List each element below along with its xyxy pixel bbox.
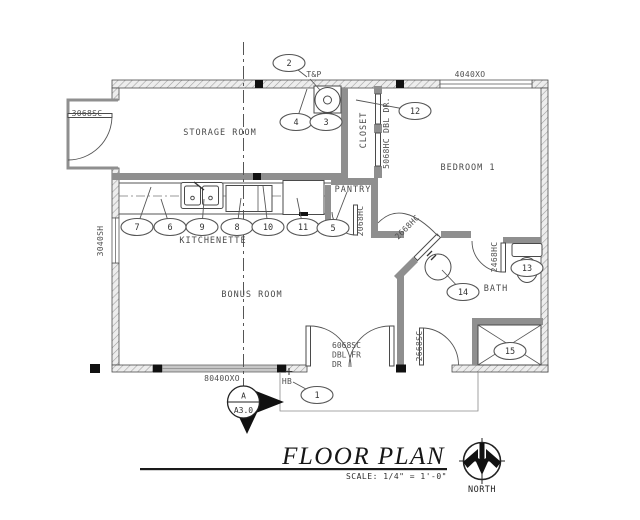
pantry-west-wall: [325, 185, 331, 223]
callout-number: 1: [314, 391, 319, 401]
pantry-north-wall: [331, 178, 378, 185]
callout-number: 15: [505, 347, 515, 357]
dim-label: 5068HC DBL DR.: [382, 97, 391, 169]
multiline-labels: 6068SCDBL FRDR: [332, 341, 361, 369]
dim-label: 3040SH: [96, 226, 105, 257]
kitchen-sink: [181, 182, 223, 209]
room-label: BONUS ROOM: [221, 290, 282, 300]
dim-label: 3068SC: [72, 109, 103, 118]
door-2468hc: [472, 241, 506, 272]
callout-number: 9: [199, 223, 204, 233]
dim-label-line: DR: [332, 360, 342, 369]
dim-label: 4040XO: [455, 70, 486, 79]
closet-door-jamb: [374, 166, 382, 178]
closet-door-jamb: [374, 124, 382, 133]
pantry-east-wall: [371, 185, 378, 238]
room-label: PANTRY: [335, 185, 372, 195]
section-marker: A A3.0: [228, 386, 285, 434]
window-4040xo: [440, 80, 532, 88]
room-label: STORAGE ROOM: [183, 128, 256, 138]
shower-west-wall: [472, 318, 478, 365]
callout-number: 4: [293, 118, 298, 128]
section-letter: A: [241, 392, 246, 401]
dim-label: 2668HC: [393, 213, 421, 241]
drawing-scale: SCALE: 1/4" = 1'-0": [346, 472, 447, 481]
window-3040sh: [112, 218, 119, 263]
callout-number: 3: [323, 118, 328, 128]
bedroom-south-wall: [441, 231, 471, 238]
door-3068sc: [68, 114, 112, 161]
storage-south-wall: [112, 173, 348, 180]
room-label: CLOSET: [359, 112, 369, 149]
title-underline: [140, 468, 447, 470]
callout-number: 10: [263, 223, 273, 233]
title-block: FLOOR PLAN SCALE: 1/4" = 1'-0": [140, 443, 447, 481]
callout-number: 8: [234, 223, 239, 233]
section-sheet: A3.0: [234, 406, 253, 415]
dim-label-line: 6068SC: [332, 341, 361, 350]
dim-label: T&P: [306, 70, 321, 79]
toilet-nook-wall: [503, 237, 541, 244]
room-label: BEDROOM 1: [440, 163, 495, 173]
bath-west-wall: [397, 274, 404, 365]
room-label: KITCHENETTE: [179, 236, 246, 246]
dim-label-line: DBL FR: [332, 351, 361, 360]
callout-number: 6: [167, 223, 172, 233]
callout-number: 14: [458, 288, 468, 298]
dim-label: HB: [282, 377, 292, 386]
dim-label: 2668SC: [415, 331, 424, 362]
north-arrow: NORTH: [459, 438, 505, 495]
drawing-title: FLOOR PLAN: [281, 443, 445, 470]
room-label: BATH: [484, 284, 508, 294]
callout-number: 7: [134, 223, 139, 233]
callout-number: 2: [286, 59, 291, 69]
floor-plan-drawing: A A3.0 NORTH FLOOR PLAN SCALE: 1/4" = 1'…: [0, 0, 640, 520]
callout-number: 12: [410, 107, 420, 117]
window-8040oxo: [162, 365, 278, 372]
north-label: NORTH: [468, 485, 496, 495]
dishwasher: [226, 186, 272, 212]
dim-label: 2468HC: [490, 242, 499, 273]
closet-door-jamb: [374, 86, 382, 94]
callout-number: 11: [298, 223, 308, 233]
refrigerator: [283, 181, 324, 217]
callout-number: 5: [330, 224, 335, 234]
closet-west-wall: [341, 88, 348, 185]
dim-label: 2068HC: [356, 206, 365, 237]
callout-number: 13: [522, 264, 532, 274]
shower-north-wall: [472, 318, 543, 325]
floor-plan-sheet: A A3.0 NORTH FLOOR PLAN SCALE: 1/4" = 1'…: [0, 0, 640, 520]
dim-label: 8040OXO: [204, 374, 240, 383]
door-2668sc: [420, 328, 459, 365]
